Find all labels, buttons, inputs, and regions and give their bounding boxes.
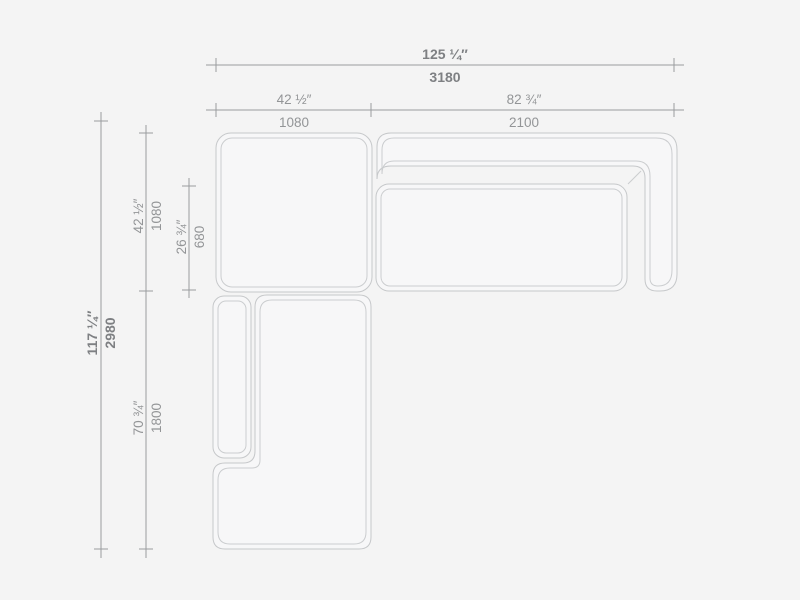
chaise-length-inches-label: 70 ¾″ xyxy=(131,400,146,435)
chaise-length-mm-label: 1800 xyxy=(149,403,164,433)
total-depth-inches-label: 117 ¼″ xyxy=(84,310,100,355)
seat-depth-inches-label: 26 ¾″ xyxy=(174,219,189,254)
corner-width-inches-label: 42 ½″ xyxy=(277,92,312,107)
sofa-width-inches-label: 82 ¾″ xyxy=(507,92,542,107)
corner-depth-inches-label: 42 ½″ xyxy=(131,198,146,233)
seat-depth-mm-label: 680 xyxy=(192,226,207,249)
total-width-inches-label: 125 ¼″ xyxy=(422,46,468,62)
sofa-width-mm-label: 2100 xyxy=(509,115,539,130)
total-width-mm-label: 3180 xyxy=(429,69,460,85)
drawing-background xyxy=(0,0,800,600)
sofa-technical-drawing: 125 ¼″ 3180 42 ½″ 1080 82 ¾″ 2100 117 ¼″… xyxy=(0,0,800,600)
corner-module-outline xyxy=(216,133,372,292)
chaise-armrest-outline xyxy=(213,296,251,458)
total-depth-mm-label: 2980 xyxy=(102,317,118,348)
corner-width-mm-label: 1080 xyxy=(279,115,309,130)
right-sofa-seat-cushion xyxy=(376,184,627,291)
corner-depth-mm-label: 1080 xyxy=(149,201,164,231)
